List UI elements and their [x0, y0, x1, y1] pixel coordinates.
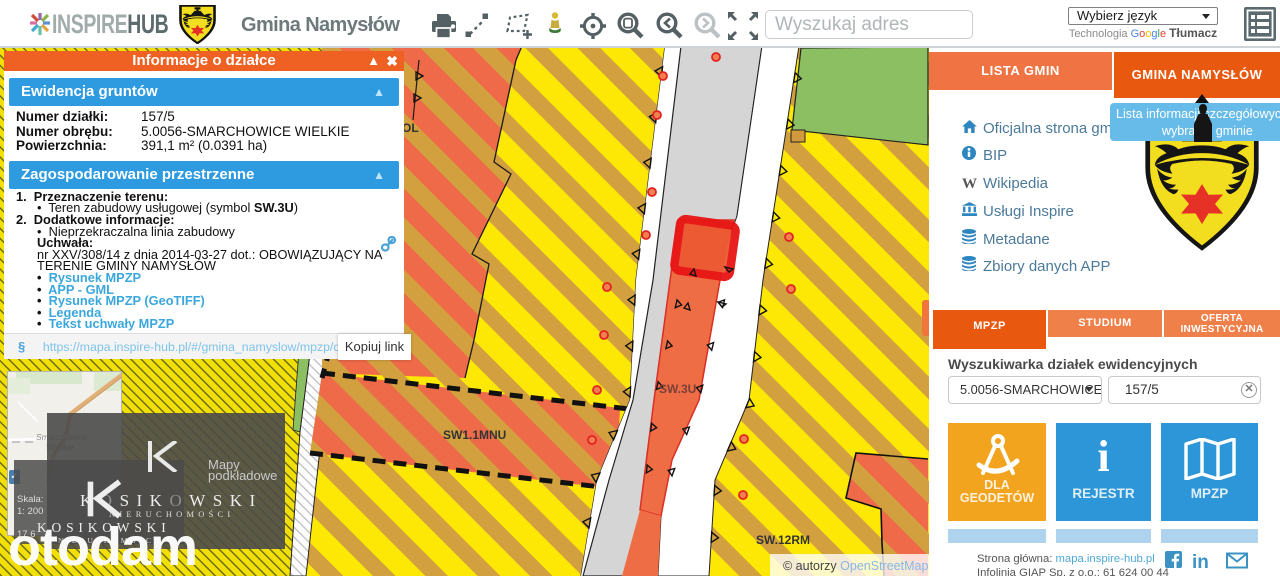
- svg-text:SW.3U: SW.3U: [659, 382, 696, 396]
- svg-text:SW1.1MNU: SW1.1MNU: [443, 428, 506, 442]
- svg-text:SW.12RM: SW.12RM: [756, 533, 810, 547]
- svg-text:© autorzy OpenStreetMap: © autorzy OpenStreetMap: [783, 559, 928, 573]
- svg-text:OL: OL: [402, 121, 419, 135]
- svg-text:in: in: [1192, 552, 1209, 570]
